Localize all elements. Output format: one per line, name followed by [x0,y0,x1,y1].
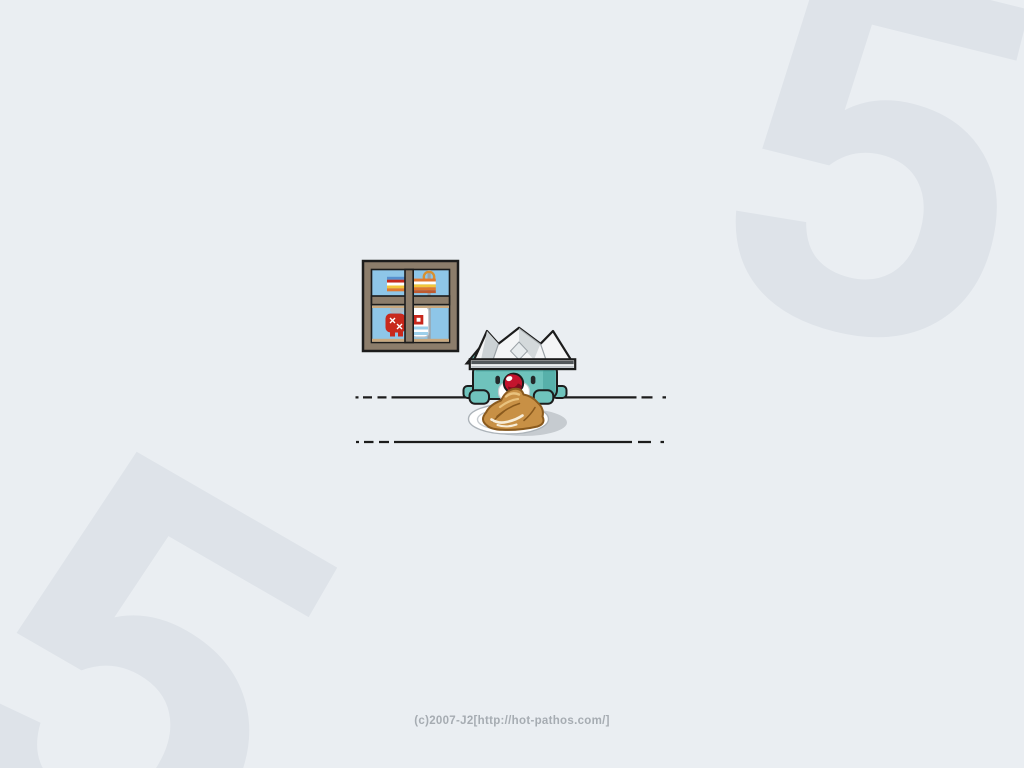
window-illustration [363,261,458,351]
wallpaper-scene: 5 5 [0,0,1024,768]
bear-right-eye [531,376,536,384]
desktop-wallpaper: 5 5 [0,0,1024,768]
koinobori-white-carp [412,306,429,338]
koinobori-streamer-right [411,279,436,294]
bear-left-paw [470,390,490,404]
watermark-numeral-top-right: 5 [673,0,1024,469]
kabuto-brim [470,359,575,369]
copyright-text: (c)2007-J2[http://hot-pathos.com/] [0,715,1024,727]
bear-left-eye [495,376,500,384]
window-mullion-vertical [405,270,413,343]
paper-kabuto-hat [470,328,575,369]
watermark-numeral-bottom-left: 5 [0,325,431,768]
